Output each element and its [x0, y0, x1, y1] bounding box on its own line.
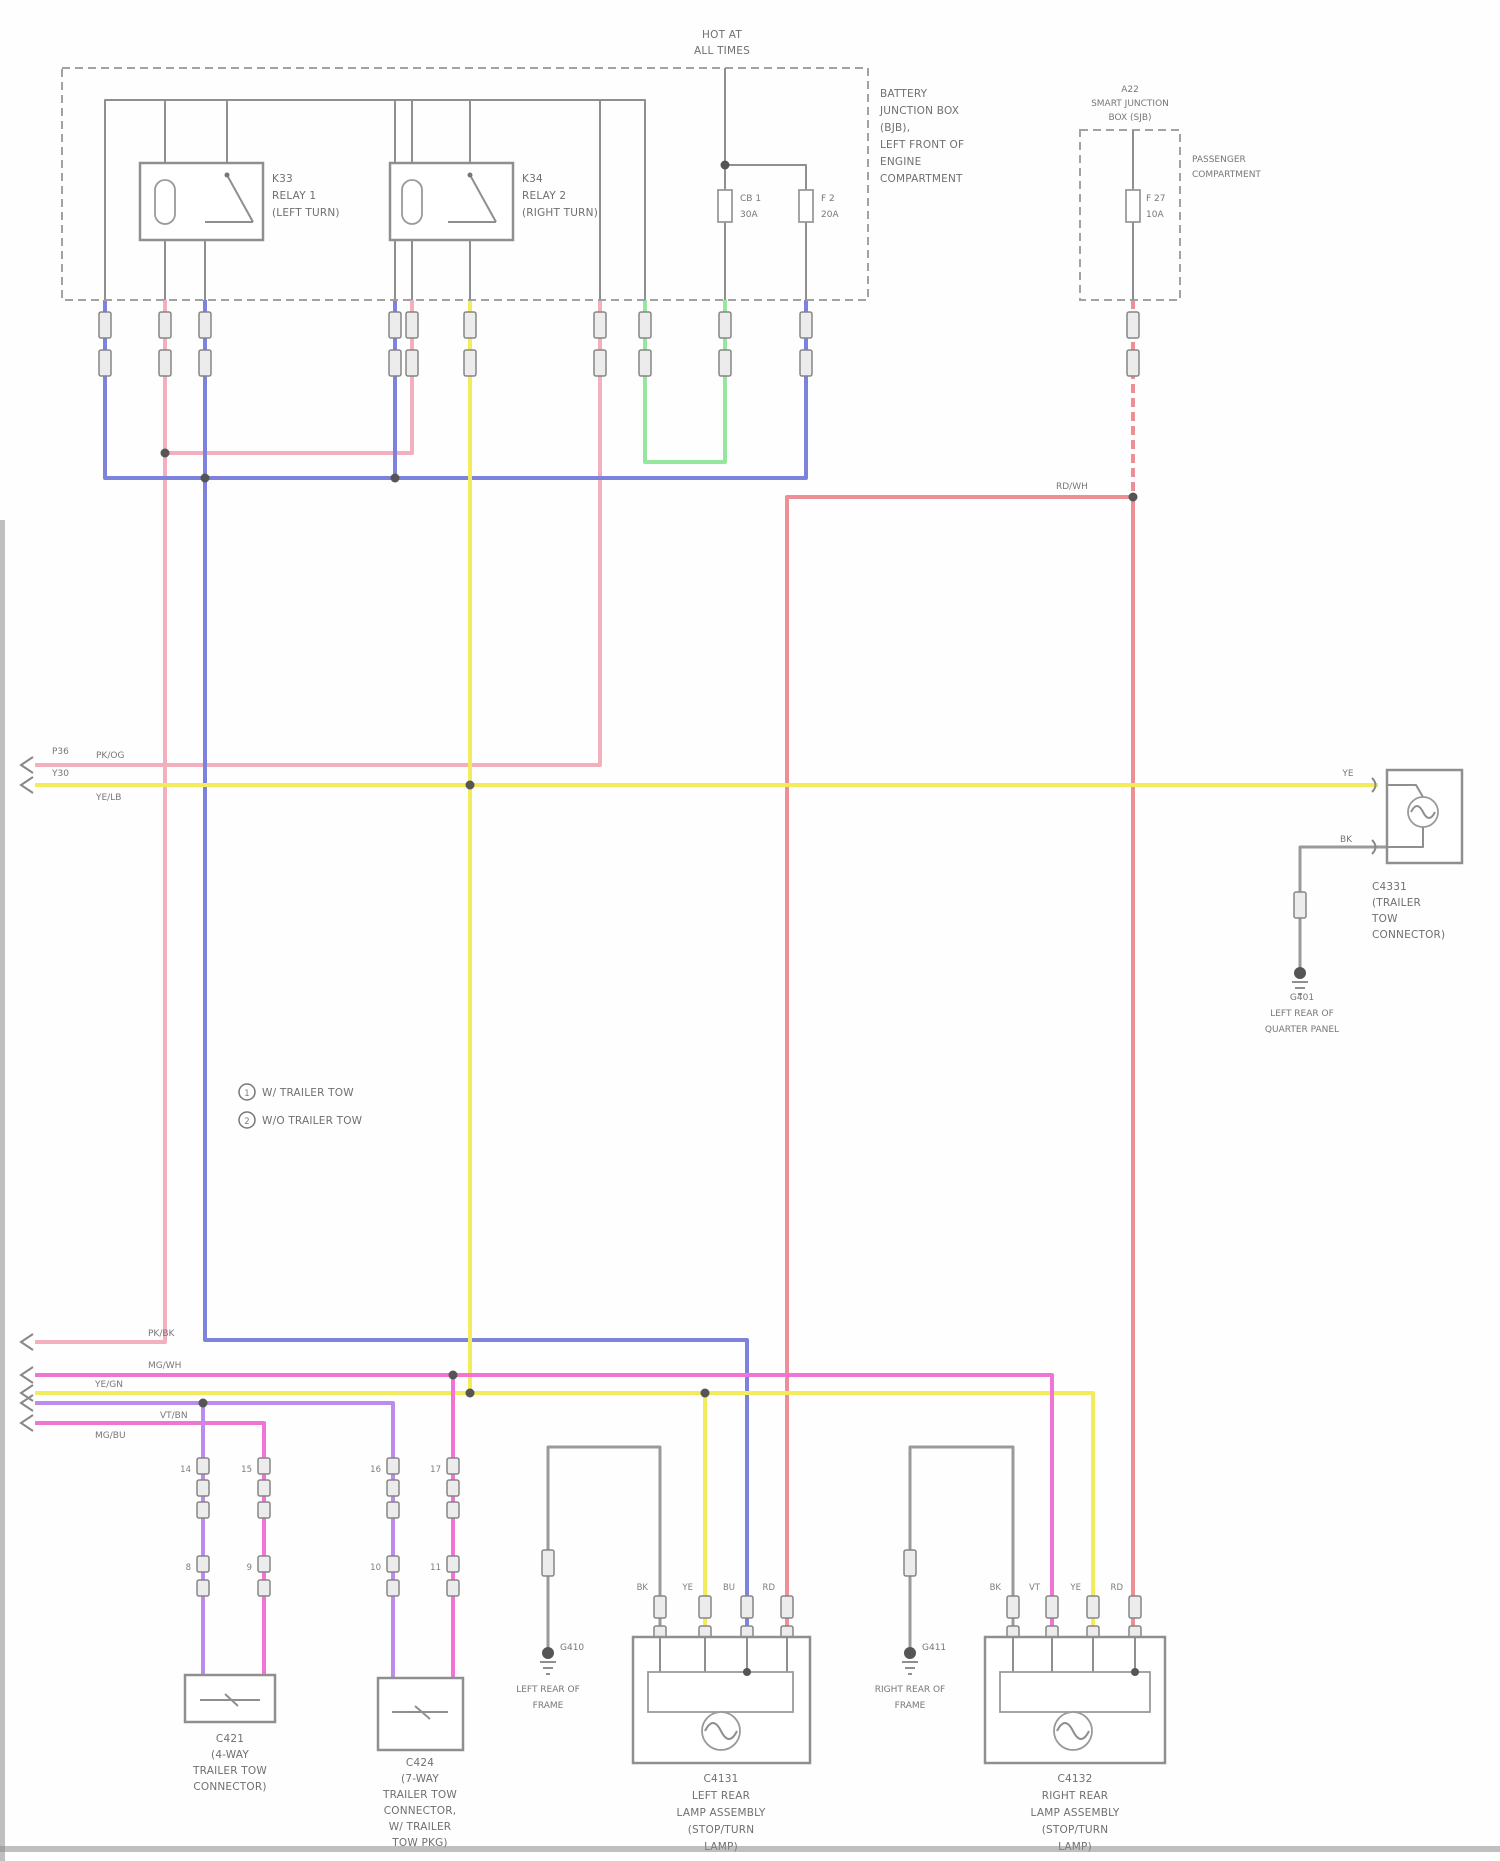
red-wire-net	[787, 300, 1133, 1637]
right-ground-inline-connector	[904, 1550, 916, 1576]
scan-edge-left	[0, 520, 5, 1861]
g410-2: FRAME	[533, 1701, 564, 1711]
right-rear-lamp-connector-strip	[1000, 1672, 1150, 1712]
ic-4b: 11	[430, 1563, 441, 1573]
red-bus-code: RD/WH	[1056, 482, 1088, 492]
ground-labels: G410 LEFT REAR OF FRAME G411 RIGHT REAR …	[516, 993, 1339, 1711]
arrow-magenta-lower	[21, 1367, 33, 1383]
relay1-coil	[155, 180, 175, 224]
fuse2-feed-line	[725, 165, 806, 190]
relay2-contact-pivot	[468, 173, 473, 178]
rr-2: RIGHT REAR	[1042, 1790, 1109, 1802]
left-ground-inline-connector	[542, 1550, 554, 1576]
ground-bars	[540, 1662, 556, 1674]
fuse2-symbol	[799, 190, 813, 222]
t4-2: (4-WAY	[211, 1749, 249, 1761]
right-rear-ground-loop	[910, 1447, 1013, 1650]
t7-4: CONNECTOR,	[384, 1805, 457, 1817]
relay2-name: RELAY 2	[522, 190, 566, 202]
ground-g410	[540, 1647, 556, 1674]
upper-conn1-code: P36	[52, 747, 69, 757]
lr-pin-rd: RD	[763, 1583, 776, 1593]
t4-1: C421	[216, 1733, 244, 1745]
sjb-ann-1: PASSENGER	[1192, 155, 1246, 165]
wiring-diagram: 1 W/ TRAILER TOW 2 W/O TRAILER TOW HOT A…	[0, 0, 1500, 1861]
circuit-breaker-symbol	[718, 190, 732, 222]
legend-text-1: W/ TRAILER TOW	[262, 1087, 354, 1099]
g401-1: LEFT REAR OF	[1270, 1009, 1334, 1019]
breaker-label: CB 1 30A	[740, 194, 761, 220]
right-rear-lamp	[985, 1637, 1165, 1763]
pin-column	[99, 312, 1139, 376]
rr-pin-vt: VT	[1029, 1583, 1041, 1593]
relay1-symbol	[140, 163, 263, 240]
relay2-symbol	[390, 163, 513, 240]
ic-2b: 9	[247, 1563, 252, 1573]
bjb-ann-4: LEFT FRONT OF	[880, 139, 964, 151]
pink-upper-code: PK/OG	[96, 751, 124, 761]
lr-pin-bu: BU	[723, 1583, 735, 1593]
ground-g401	[1292, 967, 1308, 994]
arrow-yellow-upper	[21, 777, 33, 793]
magenta2-lower-bus	[35, 1423, 264, 1675]
g411-2: FRAME	[895, 1701, 926, 1711]
breaker-amps: 30A	[740, 210, 758, 220]
tow-connector-lamp	[1372, 770, 1462, 863]
g410-code: G410	[560, 1643, 584, 1653]
towconn-note-2: (TRAILER	[1372, 897, 1421, 909]
left-rear-lamp-junction	[743, 1668, 751, 1676]
fuse2-amps: 20A	[821, 210, 839, 220]
bjb-annotation: BATTERY JUNCTION BOX (BJB), LEFT FRONT O…	[879, 88, 964, 185]
trailer4-label: C421 (4-WAY TRAILER TOW CONNECTOR)	[192, 1733, 267, 1793]
t7-2: (7-WAY	[401, 1773, 439, 1785]
lr-pin-ye: YE	[681, 1583, 693, 1593]
red-cross-bus	[787, 497, 1133, 1637]
sjb-fuse-symbol	[1126, 190, 1140, 222]
upper-conn2-code: Y30	[51, 769, 69, 779]
arrow-pink-lower	[21, 1334, 33, 1350]
yellow-wire-net	[35, 300, 1378, 1637]
t4-4: CONNECTOR)	[193, 1781, 266, 1793]
ground-bars	[902, 1662, 918, 1674]
green-jumper-loop	[645, 300, 725, 462]
rr-pin-bk: BK	[990, 1583, 1002, 1593]
legend-num-1: 1	[244, 1089, 249, 1099]
rr-1: C4132	[1057, 1773, 1092, 1785]
towconn-ground-inline-connector	[1294, 892, 1306, 918]
ic-1a: 14	[180, 1465, 191, 1475]
towconn-feed-code: YE	[1341, 769, 1353, 779]
bjb-ann-6: COMPARTMENT	[880, 173, 963, 185]
fuse2-label: F 2 20A	[821, 194, 839, 220]
ic-2a: 15	[241, 1465, 252, 1475]
ic-3b: 10	[370, 1563, 381, 1573]
magenta-lower-code: MG/WH	[148, 1361, 181, 1371]
towconn-note-3: TOW	[1371, 913, 1398, 925]
violet-wire-net	[35, 1403, 393, 1678]
relay2-detail: (RIGHT TURN)	[522, 207, 598, 219]
trailer7-connector	[378, 1678, 463, 1750]
breaker-id: CB 1	[740, 194, 761, 204]
relay2-code: K34	[522, 173, 543, 185]
trailer4-connector	[185, 1675, 275, 1722]
g401-2: QUARTER PANEL	[1265, 1025, 1339, 1035]
trailer7-label: C424 (7-WAY TRAILER TOW CONNECTOR, W/ TR…	[382, 1757, 457, 1849]
t7-3: TRAILER TOW	[382, 1789, 457, 1801]
legend: 1 W/ TRAILER TOW 2 W/O TRAILER TOW	[239, 1084, 363, 1128]
pink-wire-net	[35, 300, 600, 1342]
ic-4a: 17	[430, 1465, 441, 1475]
bjb-pin-connectors	[99, 312, 1139, 376]
sjb-title-3: BOX (SJB)	[1108, 113, 1151, 123]
yellow-lower-bus	[35, 1393, 1093, 1637]
arrow-magenta2-lower	[21, 1415, 33, 1431]
hot-line1: HOT AT	[702, 29, 742, 41]
blue-main-run	[205, 300, 747, 1637]
blue-wire-net	[105, 300, 806, 1637]
ground-dot	[542, 1647, 554, 1659]
lr-4: (STOP/TURN	[688, 1824, 755, 1836]
lr-2: LEFT REAR	[692, 1790, 750, 1802]
offpage-arrows	[21, 757, 33, 1431]
sjb-labels: A22 SMART JUNCTION BOX (SJB) PASSENGER C…	[1091, 85, 1261, 220]
pink-main-vertical	[35, 300, 165, 1342]
sjb-fuse-id: F 27	[1146, 194, 1166, 204]
t7-5: W/ TRAILER	[389, 1821, 452, 1833]
lr-3: LAMP ASSEMBLY	[677, 1807, 766, 1819]
hot-line2: ALL TIMES	[694, 45, 750, 57]
g411-code: G411	[922, 1643, 946, 1653]
legend-num-2: 2	[244, 1117, 249, 1127]
lr-pin-bk: BK	[637, 1583, 649, 1593]
ground-dot	[904, 1647, 916, 1659]
pink-mid-bus	[35, 300, 600, 765]
inline-connector-stacks	[197, 1458, 459, 1596]
left-rear-ground-loop	[548, 1447, 660, 1650]
left-rear-lamp	[633, 1637, 810, 1763]
towconn-note-1: C4331	[1372, 881, 1407, 893]
bjb-ann-5: ENGINE	[880, 156, 921, 168]
sjb-ann-2: COMPARTMENT	[1192, 170, 1261, 180]
ic-1b: 8	[186, 1563, 191, 1573]
g410-1: LEFT REAR OF	[516, 1685, 580, 1695]
right-rear-label: C4132 RIGHT REAR LAMP ASSEMBLY (STOP/TUR…	[1031, 1773, 1120, 1853]
relay1-code: K33	[272, 173, 293, 185]
right-rear-pin-labels: BK VT YE RD	[990, 1583, 1124, 1593]
rr-4: (STOP/TURN	[1042, 1824, 1109, 1836]
wiring-diagram-page: 1 W/ TRAILER TOW 2 W/O TRAILER TOW HOT A…	[0, 0, 1500, 1861]
sjb-title-2: SMART JUNCTION	[1091, 99, 1169, 109]
inline-connector-labels: 14 8 15 9 16 10 17 11	[180, 1465, 441, 1573]
towconn-gnd-code: BK	[1340, 835, 1353, 845]
g411-1: RIGHT REAR OF	[875, 1685, 945, 1695]
left-rear-lamp-connector-strip	[648, 1672, 793, 1712]
t4-3: TRAILER TOW	[192, 1765, 267, 1777]
legend-text-2: W/O TRAILER TOW	[262, 1115, 363, 1127]
yellow-upper-code: YE/LB	[95, 793, 121, 803]
bjb-ann-2: JUNCTION BOX	[879, 105, 959, 117]
ic-3a: 16	[370, 1465, 381, 1475]
violet-lower-bus	[35, 1403, 393, 1678]
bjb-ann-1: BATTERY	[880, 88, 928, 100]
bjb-ann-3: (BJB),	[880, 122, 910, 134]
relay1-detail: (LEFT TURN)	[272, 207, 340, 219]
rr-3: LAMP ASSEMBLY	[1031, 1807, 1120, 1819]
relay1-label: K33 RELAY 1 (LEFT TURN)	[272, 173, 340, 219]
magenta2-lower-code: MG/BU	[95, 1431, 126, 1441]
towconn-note-4: CONNECTOR)	[1372, 929, 1445, 941]
yellow-lower-code: YE/GN	[94, 1380, 123, 1390]
relay2-label: K34 RELAY 2 (RIGHT TURN)	[522, 173, 598, 219]
pink-lower-code: PK/BK	[148, 1329, 176, 1339]
arrow-pink-upper	[21, 757, 33, 773]
relay1-name: RELAY 1	[272, 190, 316, 202]
lr-1: C4131	[703, 1773, 738, 1785]
rr-pin-ye: YE	[1069, 1583, 1081, 1593]
sjb-fuse-amps: 10A	[1146, 210, 1164, 220]
ground-g411	[902, 1647, 918, 1674]
right-rear-lamp-junction	[1131, 1668, 1139, 1676]
g401-code: G401	[1290, 993, 1314, 1003]
violet-lower-code: VT/BN	[160, 1411, 188, 1421]
relay2-coil	[402, 180, 422, 224]
hot-label: HOT AT ALL TIMES	[694, 29, 750, 57]
fuse2-id: F 2	[821, 194, 835, 204]
rr-pin-rd: RD	[1111, 1583, 1124, 1593]
ground-dot	[1294, 967, 1306, 979]
sjb-title-1: A22	[1121, 85, 1139, 95]
trailer7-box	[378, 1678, 463, 1750]
t7-1: C424	[406, 1757, 434, 1769]
scan-edge-bottom	[0, 1846, 1500, 1852]
relay1-contact-pivot	[225, 173, 230, 178]
left-rear-label: C4131 LEFT REAR LAMP ASSEMBLY (STOP/TURN…	[677, 1773, 766, 1853]
